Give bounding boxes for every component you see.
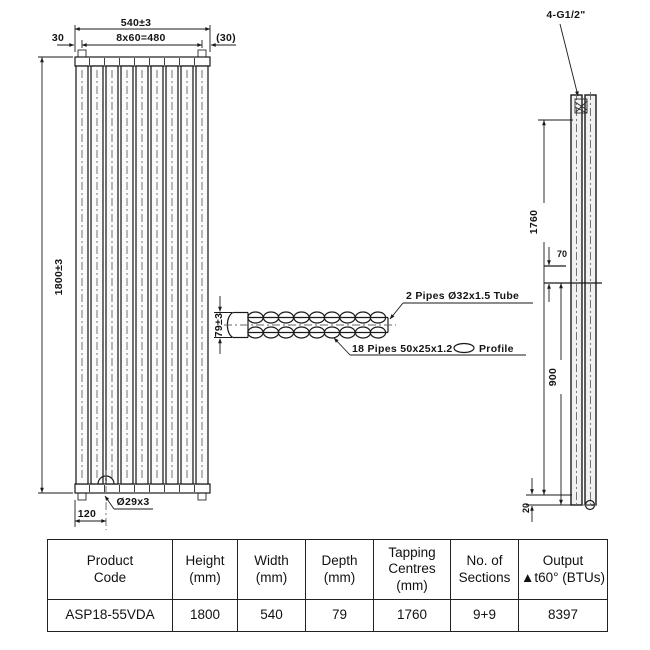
header-depth: Depth(mm) [306, 540, 374, 600]
header-width: Width(mm) [238, 540, 306, 600]
section-view: 79±3 2 Pipes Ø32x1.5 Tube 18 Pipes 50x25… [213, 290, 533, 355]
tapping-leader [560, 24, 578, 96]
side-view: 4-G1/2" 1760 70 900 20 [521, 9, 602, 522]
side-dimensions [526, 120, 573, 522]
tube-callout-leader [390, 303, 403, 319]
front-view: 540±3 30 8x60=480 (30) 1800±3 120 Ø29x3 [38, 17, 236, 530]
dim-left-offset-label: 30 [52, 32, 64, 44]
profile-callout-label: 18 Pipes 50x25x1.2 [352, 343, 453, 355]
dim-width-label: 540±3 [121, 17, 152, 29]
header-product-code: ProductCode [48, 540, 173, 600]
spec-table: ProductCode Height(mm) Width(mm) Depth(m… [47, 539, 608, 632]
profile-callout-leader [334, 338, 350, 355]
spec-header-row: ProductCode Height(mm) Width(mm) Depth(m… [48, 540, 608, 600]
dim-centres-label: 1760 [528, 210, 540, 235]
dim-right-offset-label: (30) [216, 32, 236, 44]
header-output: Output▲t60° (BTUs) [519, 540, 608, 600]
dim-depth-label: 79±3 [213, 313, 225, 337]
radiator-technical-drawing: 540±3 30 8x60=480 (30) 1800±3 120 Ø29x3 [0, 0, 650, 650]
value-height: 1800 [173, 600, 238, 632]
header-height: Height(mm) [173, 540, 238, 600]
tube-callout-label: 2 Pipes Ø32x1.5 Tube [406, 290, 519, 302]
value-width: 540 [238, 600, 306, 632]
value-output: 8397 [519, 600, 608, 632]
dim-vent-label: Ø29x3 [116, 496, 149, 508]
value-product-code: ASP18-55VDA [48, 600, 173, 632]
front-bottom-right-tapping [198, 493, 206, 500]
front-bottom-left-tapping [78, 493, 86, 500]
profile-oval-icon [454, 344, 474, 353]
dim-bottom-offset-label: 120 [78, 508, 96, 520]
front-top-left-tapping [78, 50, 86, 57]
front-bottom-header [75, 484, 210, 493]
dim-height-label: 1800±3 [53, 259, 65, 296]
value-sections: 9+9 [451, 600, 519, 632]
tapping-label: 4-G1/2" [546, 9, 585, 21]
drawing-area: 540±3 30 8x60=480 (30) 1800±3 120 Ø29x3 [0, 0, 650, 538]
front-top-header [75, 57, 210, 66]
front-top-right-tapping [198, 50, 206, 57]
spec-value-row: ASP18-55VDA 1800 540 79 1760 9+9 8397 [48, 600, 608, 632]
dim-bottom-label: 20 [521, 503, 531, 513]
value-depth: 79 [306, 600, 374, 632]
value-tapping-centres: 1760 [374, 600, 451, 632]
header-tapping-centres: TappingCentres(mm) [374, 540, 451, 600]
dim-offset-label: 70 [557, 249, 567, 259]
dim-spacing-label: 8x60=480 [116, 32, 165, 44]
profile-word-label: Profile [479, 343, 514, 355]
dim-span-label: 900 [547, 368, 559, 386]
front-sections [76, 58, 208, 492]
header-sections: No. ofSections [451, 540, 519, 600]
